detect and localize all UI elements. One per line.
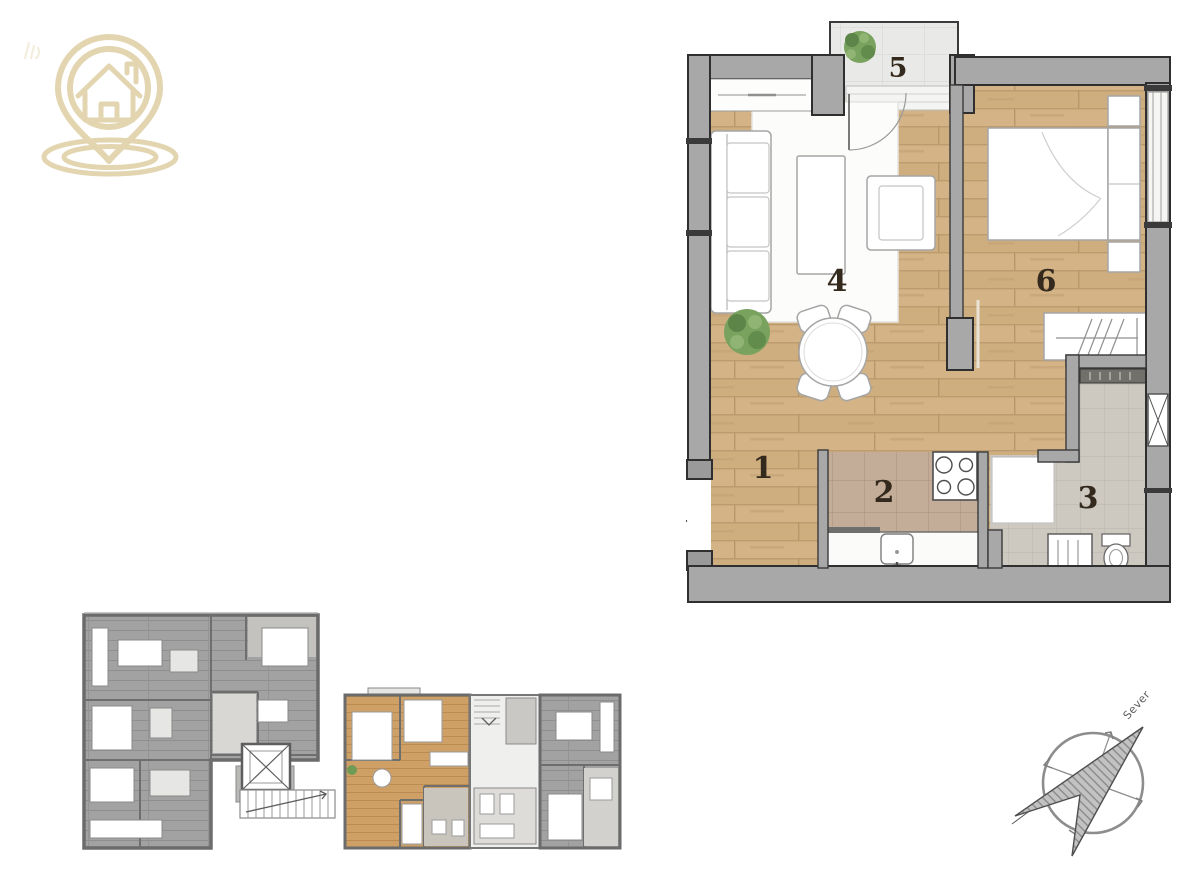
room-label-hallway: 1 (753, 451, 774, 486)
bedroom-window (1148, 92, 1168, 222)
room-label-living-room: 4 (827, 264, 848, 299)
overview-highlighted-unit (345, 688, 470, 848)
stove-icon (933, 452, 977, 500)
house-icon (78, 64, 140, 120)
room-label-bedroom: 6 (1036, 264, 1057, 299)
armchair-icon (867, 176, 935, 250)
compass-north-label: Sever (1121, 688, 1153, 722)
compass-rose: Sever (998, 688, 1200, 878)
living-room-plant-icon (724, 309, 770, 355)
wardrobe-icon (1044, 313, 1146, 360)
terrace-plant-icon (844, 31, 876, 63)
north-arrow-icon (1012, 727, 1143, 856)
faint-watermark (25, 43, 39, 58)
coffee-table-icon (797, 156, 845, 274)
room-label-bathroom: 3 (1078, 481, 1099, 516)
shaft (1148, 394, 1168, 446)
entrance-opening (687, 478, 711, 553)
room-label-terrace: 5 (889, 53, 908, 84)
overview-stairs (240, 790, 335, 818)
overview-right-unit (540, 695, 620, 848)
bath-vanity-icon (992, 457, 1054, 523)
floor-overview-plan (76, 608, 632, 856)
floorplan-page: 1 2 3 4 5 6 1 (0, 0, 1200, 889)
overview-corridor-zone (470, 695, 540, 848)
sofa-icon (711, 131, 771, 313)
kitchen-sink-icon (881, 534, 913, 570)
overview-elevator (242, 744, 290, 790)
unit-floor-plan: 1 2 3 4 5 6 1 (686, 18, 1174, 610)
bathtub-icon (1080, 369, 1146, 383)
room-label-kitchen: 2 (874, 475, 895, 510)
brand-logo (8, 14, 248, 204)
